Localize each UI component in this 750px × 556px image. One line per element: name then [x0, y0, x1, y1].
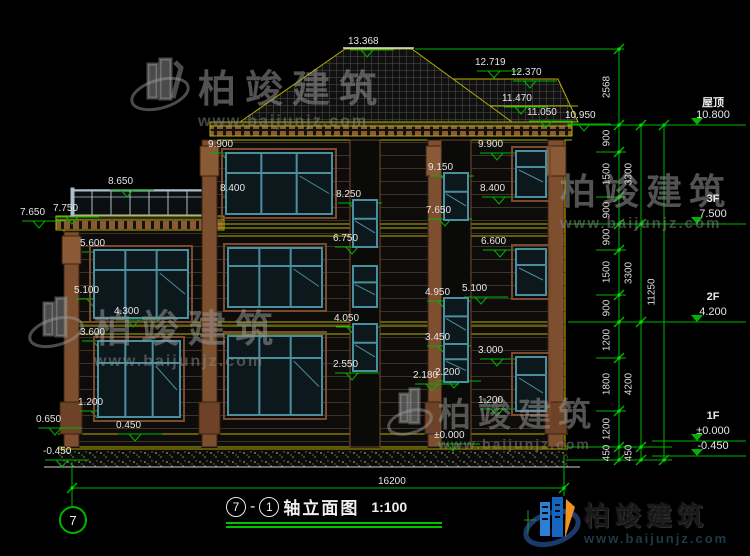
elevation-label: 13.368 [348, 36, 379, 48]
dimension-value: 4200 [624, 373, 635, 395]
balcony-railing [71, 188, 207, 216]
watermark-text: 柏竣建筑 [438, 388, 598, 436]
elevation-label: 9.900 [208, 139, 233, 151]
dimension-value: 1800 [602, 373, 613, 395]
elevation-label: 7.750 [53, 203, 78, 215]
dimension-value: 450 [602, 445, 613, 462]
title-axis-to: 1 [259, 497, 279, 517]
elevation-label: 5.100 [462, 283, 487, 295]
elevation-label: 1.200 [78, 397, 103, 409]
elevation-label: 7.650 [426, 205, 451, 217]
elevation-label: 5.600 [80, 238, 105, 250]
elevation-label: 4.050 [334, 313, 359, 325]
dimension-value: 11250 [647, 278, 658, 305]
elevation-label: ±0.000 [434, 430, 465, 442]
floor-elevation: 10.800 [678, 109, 748, 121]
dimension-value: 900 [602, 229, 613, 246]
dimension-value: 1500 [602, 163, 613, 185]
elevation-label: -0.450 [43, 446, 71, 458]
elevation-label: 6.750 [333, 233, 358, 245]
elevation-label: 0.450 [116, 420, 141, 432]
watermark-url: www.baijunjz.com [94, 353, 282, 371]
floor-name: 屋顶 [678, 94, 748, 110]
watermark-url: www.baijunjz.com [198, 113, 386, 131]
watermark: 柏竣建筑 www.baijunjz.com [438, 388, 598, 452]
elevation-label: 2.550 [333, 359, 358, 371]
title-underline-2 [226, 526, 442, 528]
title-axis-from: 7 [226, 497, 246, 517]
company-name: 柏竣建筑 [584, 496, 728, 533]
elevation-label: 5.100 [74, 285, 99, 297]
company-logo: 柏竣建筑 www.baijunjz.com [522, 489, 748, 553]
dimension-value: 3300 [624, 262, 635, 284]
elevation-label: 0.650 [36, 414, 61, 426]
elevation-label: 11.050 [527, 107, 557, 119]
floor-name: 3F [678, 193, 748, 205]
drawing-scale: 1:100 [371, 499, 407, 515]
axis-bubble-7: 7 [59, 506, 87, 534]
dimension-value: 450 [624, 445, 635, 462]
watermark-logo-icon [386, 382, 434, 444]
watermark-logo-icon [128, 50, 192, 120]
elevation-label: 4.300 [114, 306, 139, 318]
dimension-value: 2568 [602, 76, 613, 98]
elevation-label: 3.600 [80, 327, 105, 339]
elevation-label: 7.650 [20, 207, 45, 219]
floor-name: 1F [678, 410, 748, 422]
dimension-value: 3300 [624, 163, 635, 185]
elevation-label: 9.900 [478, 139, 503, 151]
elevation-drawing-canvas: 柏竣建筑 www.baijunjz.com 柏竣建筑 www.baijunjz.… [0, 0, 750, 556]
watermark-logo-icon [26, 290, 86, 356]
total-width-dimension: 16200 [378, 476, 406, 487]
watermark-text: 柏竣建筑 [198, 58, 386, 113]
dimension-value: 900 [602, 300, 613, 317]
dimension-value: 900 [602, 130, 613, 147]
floor-elevation: 4.200 [678, 306, 748, 318]
dimension-value: 1500 [602, 261, 613, 283]
title-underline [226, 522, 442, 524]
elevation-label: 12.719 [475, 57, 506, 69]
elevation-label: 4.950 [425, 287, 450, 299]
elevation-label: 3.450 [425, 332, 450, 344]
elevation-label: 11.470 [502, 93, 532, 105]
dimension-value: 1200 [602, 329, 613, 351]
elevation-label: 3.000 [478, 345, 503, 357]
elevation-label: 8.400 [480, 183, 505, 195]
floor-elevation: -0.450 [678, 440, 748, 452]
watermark [386, 382, 434, 449]
axis-number: 7 [69, 513, 76, 528]
floor-elevation: ±0.000 [678, 425, 748, 437]
watermark [128, 50, 192, 125]
elevation-label: 8.650 [108, 176, 133, 188]
floor-name: 2F [678, 291, 748, 303]
elevation-label: 9.150 [428, 162, 453, 174]
drawing-title: 轴立面图 [283, 494, 359, 519]
watermark [26, 290, 86, 361]
dimension-value: 900 [602, 202, 613, 219]
company-logo-icon [522, 490, 584, 552]
dimension-value: 1200 [602, 418, 613, 440]
foundation-hatch [58, 450, 568, 467]
elevation-label: 6.600 [481, 236, 506, 248]
elevation-label: 1.200 [478, 395, 503, 407]
title-joiner: - [250, 498, 255, 516]
elevation-label: 8.400 [220, 183, 245, 195]
company-url: www.baijunjz.com [584, 531, 728, 546]
elevation-label: 8.250 [336, 189, 361, 201]
floor-elevation: 7.500 [678, 208, 748, 220]
elevation-label: 2.200 [435, 367, 460, 379]
elevation-label: 12.370 [511, 67, 542, 79]
watermark: 柏竣建筑 www.baijunjz.com [198, 58, 386, 131]
title-block: 7 - 1 轴立面图 1:100 [226, 494, 442, 528]
elevation-label: 10.950 [565, 110, 596, 122]
